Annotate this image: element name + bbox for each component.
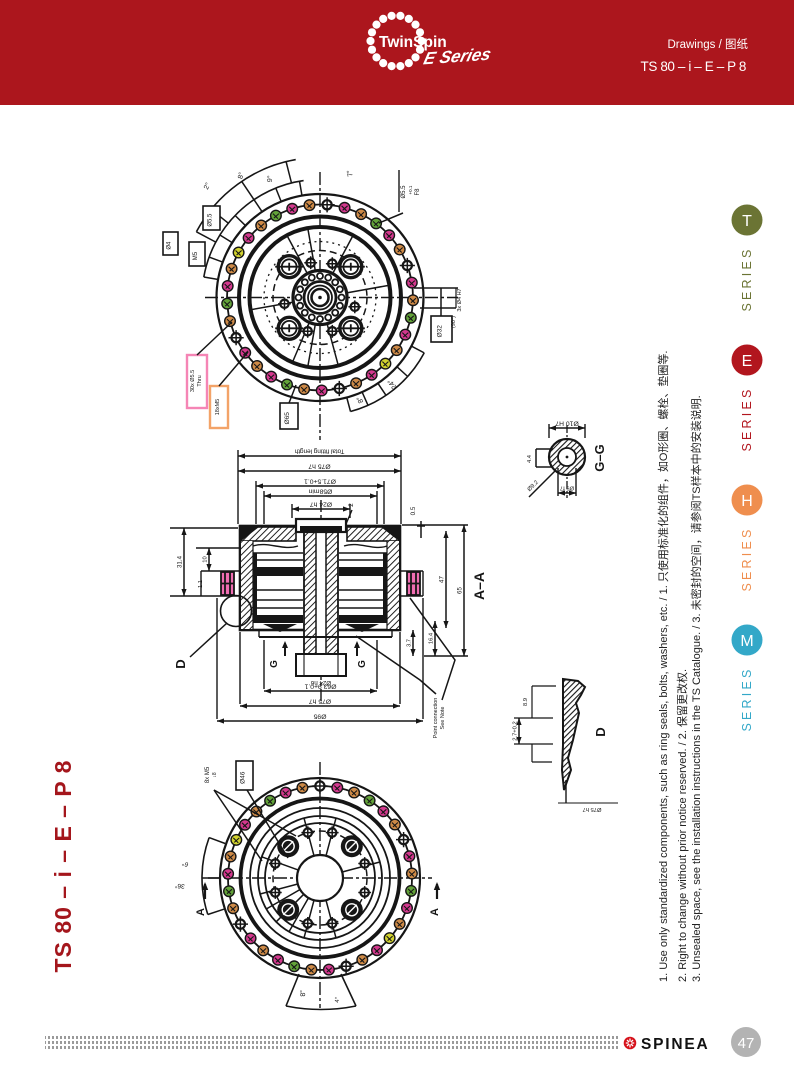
svg-text:M5: M5 [193,251,199,260]
svg-text:A: A [195,908,207,916]
svg-text:8x M5: 8x M5 [205,766,211,783]
svg-text:Drawings / 图纸: Drawings / 图纸 [667,38,748,51]
svg-text:F8: F8 [415,188,421,196]
svg-text:Ø75 h7: Ø75 h7 [309,698,332,705]
svg-text:Thru: Thru [197,375,203,386]
svg-text:Ø46: Ø46 [240,771,247,784]
svg-text:8°: 8° [299,989,308,997]
svg-text:4.4: 4.4 [527,454,533,463]
svg-text:E: E [742,353,753,370]
svg-text:3.7: 3.7 [407,639,413,647]
svg-text:36°: 36° [174,882,185,891]
svg-text:1.1: 1.1 [198,580,204,588]
svg-text:SERIES: SERIES [740,386,754,451]
svg-text:Ø71.5+0.1: Ø71.5+0.1 [304,478,336,485]
svg-text:Ø9.2: Ø9.2 [527,480,540,493]
svg-text:7°: 7° [345,169,354,177]
svg-text:D: D [173,659,188,668]
svg-text:Ø24 h7: Ø24 h7 [310,501,333,508]
svg-text:G: G [269,660,280,668]
svg-text:Point connection: Point connection [433,698,439,739]
svg-text:3. Unsealed space, see the ins: 3. Unsealed space, see the installation … [689,395,703,982]
svg-text:1. Use only standardized compo: 1. Use only standardized components, suc… [656,351,670,982]
svg-text:47: 47 [738,1035,755,1052]
svg-text:A: A [429,908,441,916]
svg-text:Ø75 h7: Ø75 h7 [308,463,331,470]
svg-text:2. Right to change without pri: 2. Right to change without prior notice … [675,669,689,982]
svg-text:Ø32: Ø32 [437,325,444,338]
svg-text:Ø5.5: Ø5.5 [401,185,407,199]
svg-text:30x Ø5.5: 30x Ø5.5 [190,370,196,392]
svg-text:Ø10 H7: Ø10 H7 [555,420,579,427]
svg-text:SPINEA: SPINEA [641,1036,710,1053]
svg-text:D: D [593,727,608,736]
svg-text:0.5: 0.5 [410,506,417,515]
svg-text:8°: 8° [236,171,245,179]
svg-text:SERIES: SERIES [740,526,754,591]
svg-text:+0.1: +0.1 [408,185,413,194]
svg-text:M: M [740,633,753,650]
svg-text:24°: 24° [386,377,399,390]
svg-text:Ø9 f7: Ø9 f7 [560,485,574,491]
svg-text:Ø5.5: Ø5.5 [208,213,214,227]
svg-text:A–A: A–A [471,572,487,600]
svg-text:3x Ø4 H7: 3x Ø4 H7 [457,288,463,311]
svg-text:Total fitting length: Total fitting length [294,448,344,455]
svg-text:Ø4: Ø4 [167,241,173,250]
svg-text:TS 80 – i – E – P 8: TS 80 – i – E – P 8 [641,59,746,74]
svg-text:8.9: 8.9 [523,698,529,706]
svg-text:2°: 2° [202,181,212,191]
svg-text:G–G: G–G [592,444,607,471]
svg-text:SERIES: SERIES [740,246,754,311]
svg-text:Ø95: Ø95 [313,713,326,720]
svg-text:Ø63.9+0.1: Ø63.9+0.1 [304,683,336,690]
svg-text:(90°): (90°) [451,316,457,328]
svg-text:T: T [742,213,752,230]
svg-text:18xM5: 18xM5 [215,399,221,416]
svg-text:4°: 4° [335,996,342,1003]
svg-text:2.7+0.2: 2.7+0.2 [513,721,519,741]
svg-text:65: 65 [457,587,464,594]
svg-text:2: 2 [348,503,355,507]
svg-text:31.4: 31.4 [177,555,184,568]
svg-text:6°: 6° [181,859,190,869]
svg-text:TS 80 – i – E – P 8: TS 80 – i – E – P 8 [50,760,76,973]
svg-text:SERIES: SERIES [740,666,754,731]
svg-text:16.4: 16.4 [429,632,435,644]
svg-text:↓8: ↓8 [212,772,218,778]
svg-text:See Note: See Note [440,707,446,730]
svg-text:Ø75 h7: Ø75 h7 [582,806,601,812]
svg-text:Ø58min: Ø58min [308,488,332,495]
svg-text:G: G [357,660,368,668]
svg-text:Ø65: Ø65 [284,412,291,425]
svg-text:47: 47 [439,576,446,583]
svg-text:H: H [741,493,753,510]
svg-text:10: 10 [203,556,209,562]
svg-text:9°: 9° [266,175,275,183]
